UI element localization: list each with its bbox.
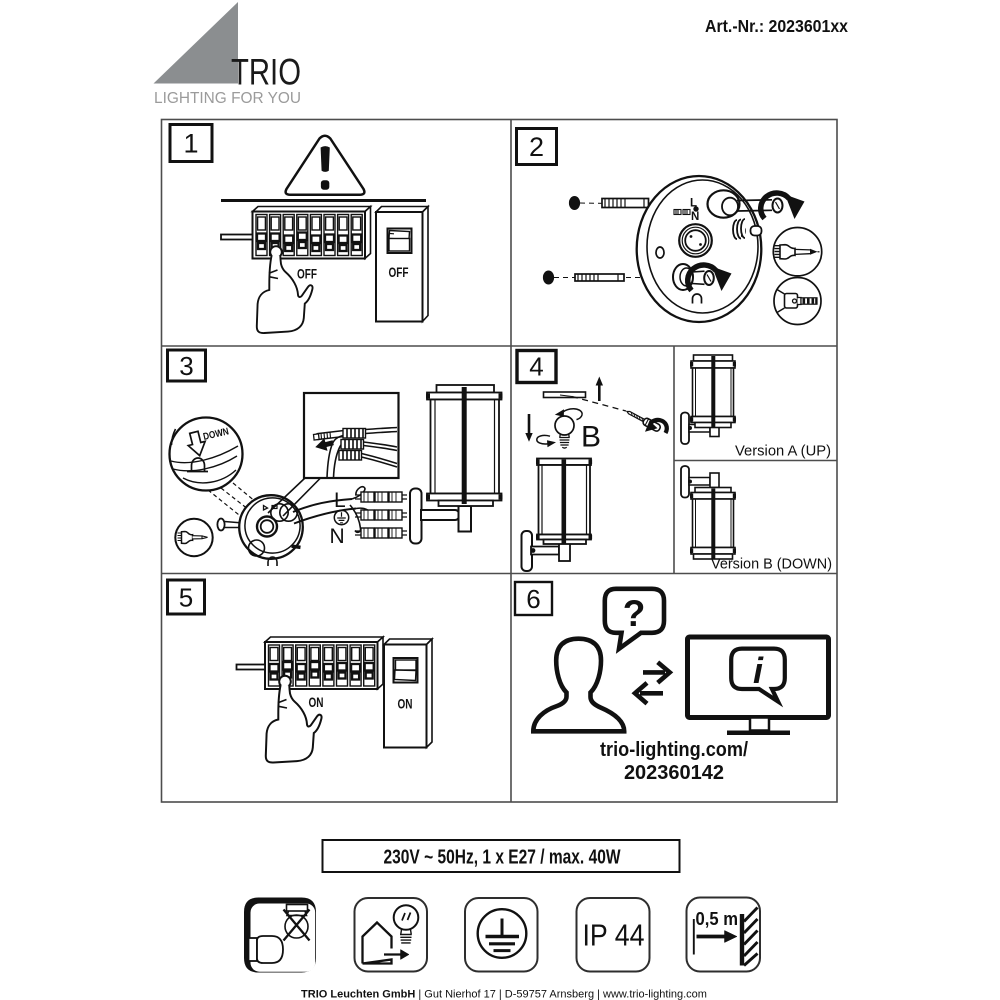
svg-text:3: 3 bbox=[179, 351, 193, 381]
svg-text:N: N bbox=[330, 525, 345, 548]
svg-text:N: N bbox=[691, 211, 699, 223]
svg-text:Art.-Nr.: 2023601xx: Art.-Nr.: 2023601xx bbox=[705, 16, 848, 36]
svg-text:4: 4 bbox=[529, 352, 543, 382]
svg-text:TRIO Leuchten GmbH | Gut Nie: TRIO Leuchten GmbH | Gut Nierhof 17 | D-… bbox=[301, 989, 707, 1000]
svg-text:OFF: OFF bbox=[297, 267, 317, 282]
svg-text:6: 6 bbox=[526, 584, 540, 614]
svg-text:TRIO: TRIO bbox=[231, 52, 301, 93]
svg-text:trio-lighting.com/: trio-lighting.com/ bbox=[600, 739, 748, 761]
svg-text:L: L bbox=[334, 489, 346, 512]
svg-text:Version A (UP): Version A (UP) bbox=[735, 443, 831, 460]
svg-text:2: 2 bbox=[529, 132, 544, 162]
svg-text:ON: ON bbox=[309, 695, 324, 710]
svg-text:0,5 m: 0,5 m bbox=[696, 908, 739, 929]
svg-text:5: 5 bbox=[179, 583, 193, 613]
svg-text:230V ~ 50Hz, 1 x E27 / max. 40: 230V ~ 50Hz, 1 x E27 / max. 40W bbox=[384, 847, 621, 869]
svg-text:ON: ON bbox=[398, 697, 413, 712]
svg-text:B: B bbox=[581, 421, 601, 454]
svg-text:IP 44: IP 44 bbox=[583, 918, 645, 953]
svg-text:202360142: 202360142 bbox=[624, 762, 724, 784]
svg-text:i: i bbox=[753, 650, 764, 691]
svg-text:LIGHTING FOR YOU: LIGHTING FOR YOU bbox=[154, 90, 301, 107]
svg-text:Version B (DOWN): Version B (DOWN) bbox=[711, 556, 832, 573]
svg-text:OFF: OFF bbox=[389, 265, 409, 280]
svg-text:?: ? bbox=[623, 593, 646, 634]
svg-text:1: 1 bbox=[183, 129, 198, 159]
